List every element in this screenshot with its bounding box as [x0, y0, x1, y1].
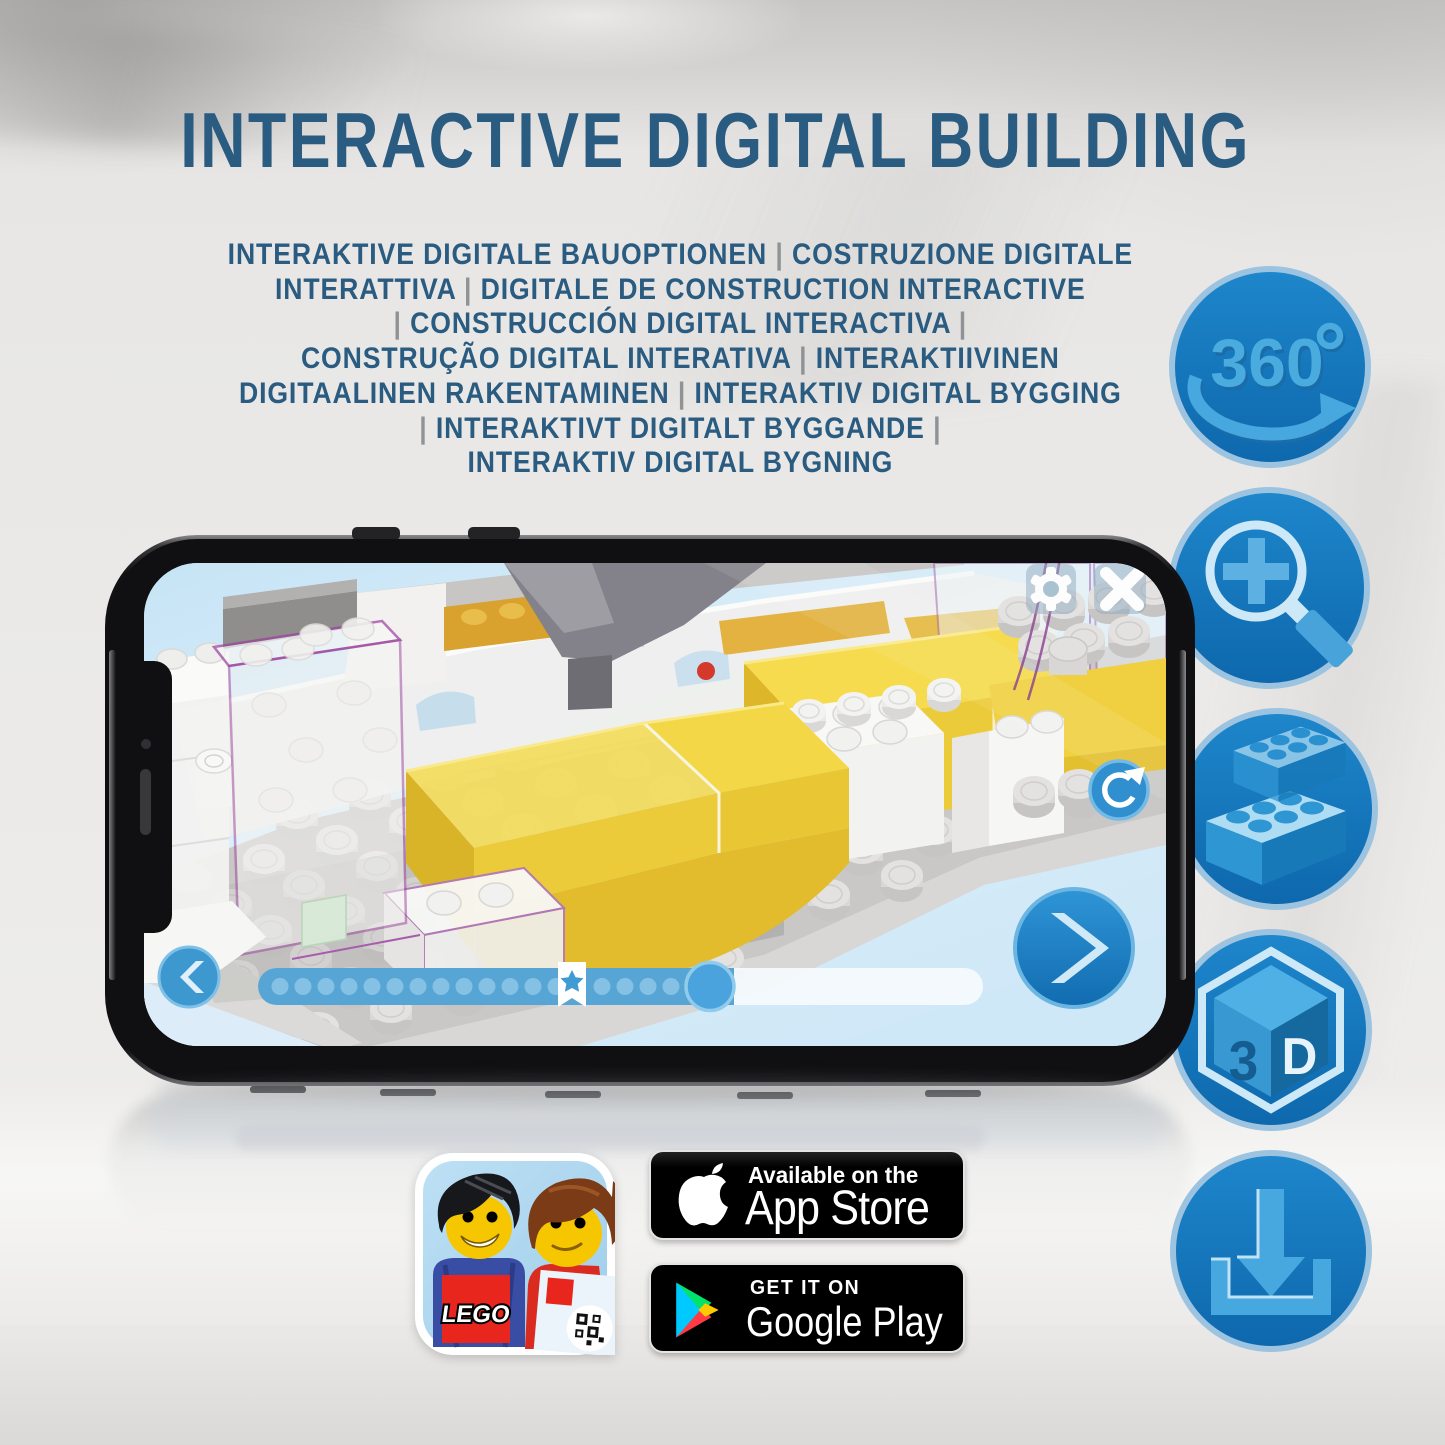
svg-text:360: 360 [1210, 325, 1323, 401]
svg-text:3: 3 [1229, 1030, 1259, 1093]
svg-text:D: D [1282, 1027, 1318, 1085]
svg-text:LEGO: LEGO [440, 1301, 512, 1328]
